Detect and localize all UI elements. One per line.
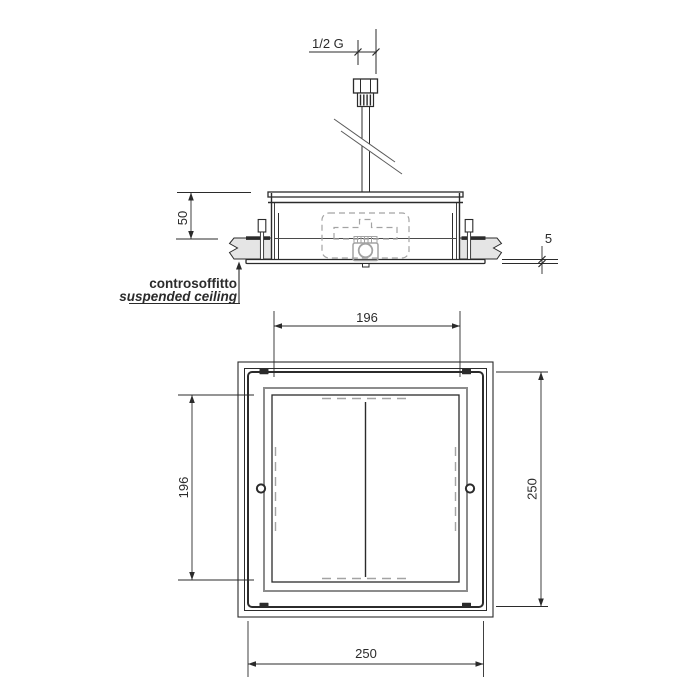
fasteners bbox=[246, 220, 486, 261]
dim-label-plan-right: 250 bbox=[525, 478, 540, 500]
dim-label-connection: 1/2 G bbox=[312, 36, 344, 51]
hidden-internals bbox=[322, 213, 409, 258]
dim-label-plan-left: 196 bbox=[176, 477, 191, 499]
plan-view: 196 196 250 250 bbox=[176, 310, 548, 677]
arrow-left bbox=[248, 661, 256, 667]
arrow-up bbox=[189, 395, 195, 403]
ceiling-band-left bbox=[230, 238, 272, 259]
dim-label-plan-top: 196 bbox=[356, 310, 378, 325]
break-mark bbox=[341, 131, 402, 174]
break-mark bbox=[334, 119, 395, 162]
arrow-right bbox=[452, 323, 460, 329]
shower-head-installation-drawing: 1/2 G bbox=[0, 0, 700, 700]
flange-center-tab bbox=[363, 264, 370, 268]
housing bbox=[268, 192, 463, 260]
clamp-foot-left bbox=[246, 236, 270, 240]
pipe-break-mask bbox=[334, 119, 402, 174]
clamp-foot-right bbox=[462, 236, 486, 240]
dim-plan-right: 250 bbox=[496, 372, 548, 607]
supply-pipe bbox=[334, 79, 402, 192]
housing-top-plate bbox=[268, 192, 463, 197]
side-view: 1/2 G bbox=[119, 29, 558, 304]
dim-connection: 1/2 G bbox=[309, 29, 380, 74]
arrow-left bbox=[274, 323, 282, 329]
arrow-up bbox=[538, 372, 544, 380]
arrow-right bbox=[476, 661, 484, 667]
bolt-rod-left bbox=[260, 232, 263, 260]
ceiling-band-right bbox=[460, 238, 502, 259]
arrow-down bbox=[189, 572, 195, 580]
mounting-clip bbox=[462, 369, 471, 374]
screw-hole-right bbox=[466, 484, 474, 492]
mounting-clip bbox=[260, 603, 269, 608]
ceiling-section bbox=[230, 238, 502, 259]
dim-label-depth: 50 bbox=[175, 211, 190, 225]
bolt-nut-left bbox=[258, 220, 266, 233]
dim-plan-bottom: 250 bbox=[248, 621, 484, 677]
dim-label-plan-bottom: 250 bbox=[355, 646, 377, 661]
hex-nut bbox=[354, 79, 378, 93]
dim-label-thickness: 5 bbox=[545, 231, 552, 246]
screw-hole-left bbox=[257, 484, 265, 492]
arrow-down bbox=[188, 231, 194, 239]
bolt-rod-right bbox=[467, 232, 470, 260]
dim-depth: 50 bbox=[175, 193, 251, 240]
mounting-clip bbox=[462, 603, 471, 608]
arrow-up bbox=[188, 193, 194, 201]
technical-drawing-canvas: 1/2 G bbox=[0, 0, 700, 700]
mounting-clip bbox=[260, 369, 269, 374]
ceiling-label: controsoffitto suspended ceiling bbox=[119, 262, 242, 305]
swivel-ball bbox=[359, 244, 373, 258]
arrow-down bbox=[538, 599, 544, 607]
dim-thickness: 5 bbox=[502, 231, 558, 274]
swivel-joint bbox=[353, 237, 378, 261]
ceiling-label-english: suspended ceiling bbox=[119, 289, 238, 304]
bolt-nut-right bbox=[465, 220, 473, 233]
